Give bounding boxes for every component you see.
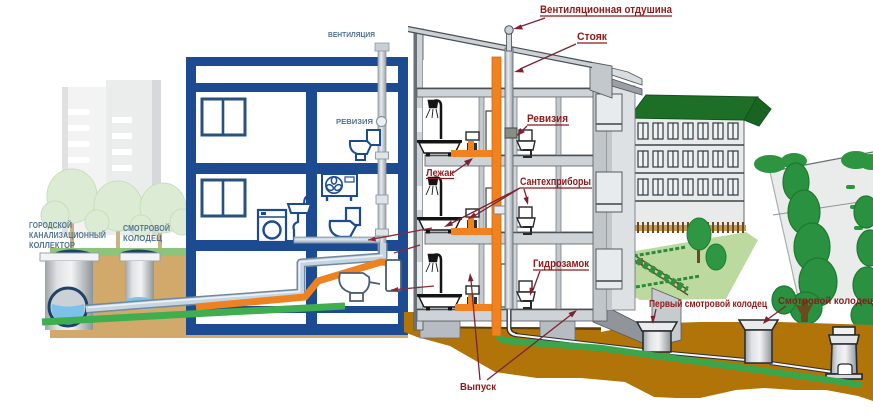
- svg-text:СМОТРОВОЙ: СМОТРОВОЙ: [123, 224, 170, 233]
- svg-text:Сантехприборы: Сантехприборы: [520, 176, 591, 188]
- svg-text:ВЕНТИЛЯЦИЯ: ВЕНТИЛЯЦИЯ: [328, 30, 375, 39]
- svg-text:Вентиляционная отдушина: Вентиляционная отдушина: [540, 4, 673, 16]
- svg-text:Выпуск: Выпуск: [460, 382, 497, 393]
- svg-text:КОЛОДЕЦ: КОЛОДЕЦ: [123, 234, 162, 243]
- svg-text:Стояк: Стояк: [577, 31, 607, 43]
- svg-text:Лежак: Лежак: [426, 167, 455, 179]
- svg-text:КАНАЛИЗАЦИОННЫЙ: КАНАЛИЗАЦИОННЫЙ: [29, 231, 106, 240]
- svg-text:ГОРОДСКОЙ: ГОРОДСКОЙ: [29, 221, 72, 230]
- svg-text:Первый смотровой колодец: Первый смотровой колодец: [649, 299, 768, 310]
- svg-text:Гидрозамок: Гидрозамок: [533, 258, 589, 270]
- svg-text:Ревизия: Ревизия: [527, 113, 568, 125]
- svg-text:РЕВИЗИЯ: РЕВИЗИЯ: [336, 117, 373, 126]
- svg-text:Смотровой колодец: Смотровой колодец: [778, 296, 873, 307]
